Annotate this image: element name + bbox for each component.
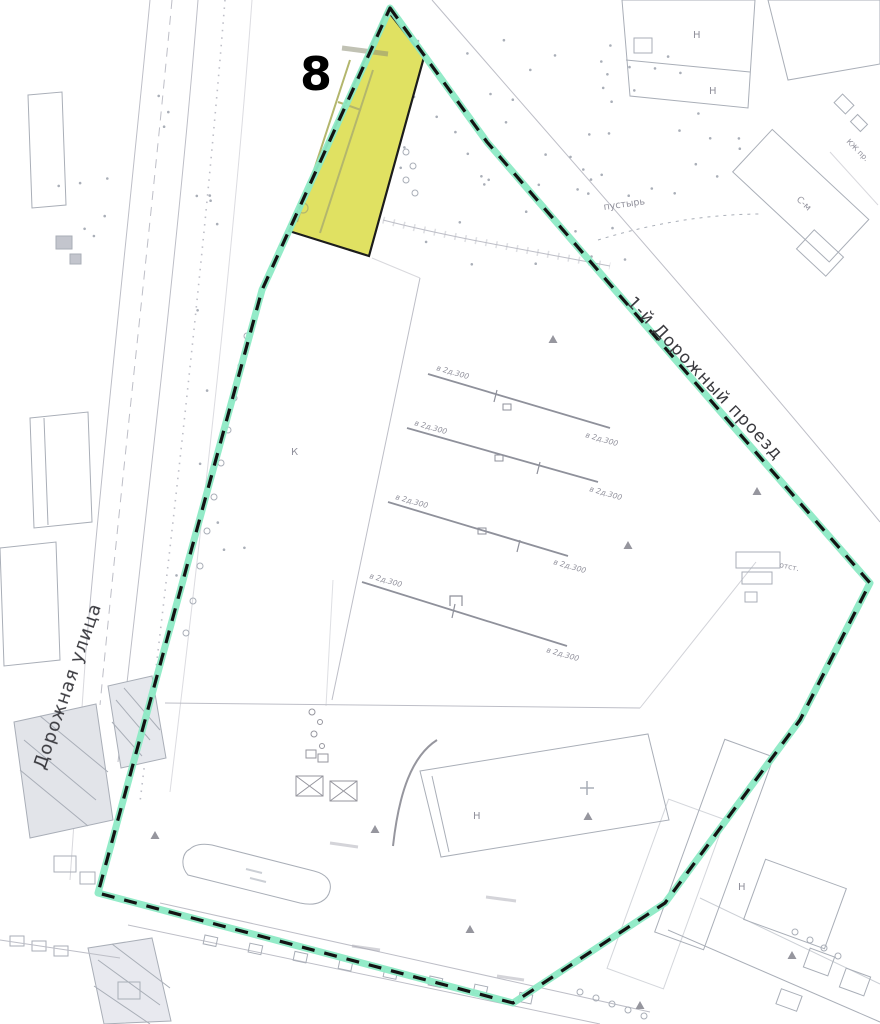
vegetation-dot bbox=[709, 137, 712, 140]
buildings-right-mid bbox=[736, 552, 780, 602]
utility-labels: в 2д.300 в 2д.300 в 2д.300 в 2д.300 в 2д… bbox=[368, 363, 623, 663]
triangle-symbol bbox=[549, 335, 558, 343]
vegetation-dot bbox=[489, 93, 492, 96]
vegetation-dot bbox=[454, 131, 457, 134]
vegetation-dot bbox=[480, 175, 483, 178]
vegetation-dot bbox=[624, 258, 627, 261]
vegetation-dot bbox=[503, 39, 506, 42]
n-label: Н bbox=[738, 882, 746, 893]
buildings-bottom-left bbox=[10, 936, 171, 1024]
vegetation-dot bbox=[83, 228, 86, 231]
vegetation-dot bbox=[163, 125, 166, 128]
vegetation-dot bbox=[574, 230, 577, 233]
vegetation-dot bbox=[106, 177, 109, 180]
site-boundary bbox=[98, 8, 870, 1003]
topographic-plan-canvas: в 2д.300 в 2д.300 в 2д.300 в 2д.300 в 2д… bbox=[0, 0, 880, 1024]
vegetation-dot bbox=[467, 153, 470, 156]
k-label: К bbox=[291, 447, 298, 458]
survey-circle bbox=[197, 563, 203, 569]
vegetation-dot bbox=[554, 54, 557, 57]
point-circle bbox=[625, 1007, 631, 1013]
n-label: Н bbox=[693, 30, 701, 41]
vegetation-dot bbox=[175, 574, 178, 577]
vegetation-dot bbox=[600, 174, 603, 177]
building-bottom-centre bbox=[420, 734, 669, 857]
vegetation-dot bbox=[93, 235, 96, 238]
vegetation-dot bbox=[471, 263, 474, 266]
utility-label: в 2д.300 bbox=[588, 484, 623, 502]
buildings-bottom-right bbox=[607, 739, 880, 1022]
vegetation-dot bbox=[525, 210, 528, 213]
vegetation-dot bbox=[678, 129, 681, 132]
vegetation-dot bbox=[505, 121, 508, 124]
utility-label: в 2д.300 bbox=[394, 492, 429, 510]
vegetation-dot bbox=[79, 182, 82, 185]
vegetation-dot bbox=[216, 223, 219, 226]
vegetation-dot bbox=[487, 179, 490, 182]
triangle-symbol bbox=[151, 831, 160, 839]
vegetation-dot bbox=[206, 389, 209, 392]
n-label: Н bbox=[709, 86, 717, 97]
vegetation-dot bbox=[403, 146, 406, 149]
vegetation-dot bbox=[695, 163, 698, 166]
vegetation-dot bbox=[627, 194, 630, 197]
vegetation-dot bbox=[606, 73, 609, 76]
vegetation-dot bbox=[243, 547, 246, 550]
base-linework bbox=[0, 0, 880, 1024]
pole-cluster bbox=[296, 709, 437, 846]
vegetation-dot bbox=[57, 185, 60, 188]
buildings-left bbox=[0, 92, 166, 884]
vegetation-dot bbox=[538, 184, 541, 187]
vegetation-dot bbox=[600, 60, 603, 63]
vegetation-dot bbox=[610, 100, 613, 103]
vegetation-dot bbox=[157, 95, 160, 98]
point-circle bbox=[792, 929, 798, 935]
triangle-symbol bbox=[636, 1001, 645, 1009]
vegetation-dot bbox=[435, 116, 438, 119]
vegetation-dot bbox=[587, 192, 590, 195]
vegetation-dot bbox=[628, 66, 631, 69]
vegetation-dot bbox=[611, 227, 614, 230]
triangle-symbols bbox=[151, 335, 797, 1009]
vegetation-dot bbox=[673, 192, 676, 195]
vegetation-dot bbox=[199, 463, 202, 466]
vegetation-dot bbox=[738, 137, 741, 140]
vegetation-dot bbox=[209, 199, 212, 202]
survey-circle bbox=[204, 528, 210, 534]
point-circle bbox=[835, 953, 841, 959]
vegetation-dot bbox=[103, 215, 106, 218]
point-circle bbox=[641, 1013, 647, 1019]
vegetation-dot bbox=[602, 87, 605, 90]
triangle-symbol bbox=[788, 951, 797, 959]
vegetation-dot bbox=[588, 133, 591, 136]
vegetation-dot bbox=[609, 44, 612, 47]
site-plan-svg: в 2д.300 в 2д.300 в 2д.300 в 2д.300 в 2д… bbox=[0, 0, 880, 1024]
vegetation-dot bbox=[590, 178, 593, 181]
vegetation-dot bbox=[425, 241, 428, 244]
vegetation-dot bbox=[716, 175, 719, 178]
vegetation-dot bbox=[651, 187, 654, 190]
point-circle bbox=[577, 989, 583, 995]
teardrop-structure bbox=[183, 844, 330, 904]
vegetation-dot bbox=[534, 262, 537, 265]
kzh-label: КЖ пр. bbox=[845, 137, 871, 163]
vegetation-dot bbox=[544, 153, 547, 156]
vegetation-dot bbox=[209, 194, 212, 197]
survey-circle bbox=[211, 494, 217, 500]
vegetation-dot bbox=[679, 72, 682, 75]
point-circle bbox=[807, 937, 813, 943]
vegetation-dot bbox=[654, 67, 657, 70]
boundary-highlight bbox=[98, 8, 870, 1003]
plot-number: 8 bbox=[300, 47, 332, 101]
utility-label: в 2д.300 bbox=[545, 645, 580, 663]
vegetation-dot bbox=[569, 156, 572, 159]
vegetation-dot bbox=[196, 195, 199, 198]
utility-label: в 2д.300 bbox=[584, 430, 619, 448]
vegetation-dot bbox=[512, 98, 515, 101]
vegetation-dot bbox=[529, 69, 532, 72]
vegetation-dot bbox=[576, 188, 579, 191]
vegetation-dot bbox=[697, 112, 700, 115]
utility-label: в 2д.300 bbox=[413, 418, 448, 436]
utility-lines bbox=[362, 374, 610, 646]
vegetation-dot bbox=[399, 167, 402, 170]
vegetation-dot bbox=[459, 221, 462, 224]
vegetation-dot bbox=[217, 521, 220, 524]
vegetation-dot bbox=[633, 89, 636, 92]
triangle-symbol bbox=[371, 825, 380, 833]
triangle-symbol bbox=[753, 487, 762, 495]
triangle-symbol bbox=[584, 812, 593, 820]
triangle-symbol bbox=[624, 541, 633, 549]
vegetation-dot bbox=[582, 168, 585, 171]
triangle-symbol bbox=[466, 925, 475, 933]
road-right bbox=[432, 0, 880, 522]
utility-label: в 2д.300 bbox=[552, 557, 587, 575]
vegetation-dot bbox=[608, 132, 611, 135]
sm-label: С-м bbox=[794, 195, 813, 213]
otst-label: отст. bbox=[779, 560, 800, 573]
vegetation-dot bbox=[223, 548, 226, 551]
vegetation-dot bbox=[466, 52, 469, 55]
survey-circle bbox=[183, 630, 189, 636]
boundary-dash bbox=[98, 8, 870, 1003]
vegetation-dot bbox=[167, 111, 170, 114]
vegetation-dot bbox=[739, 147, 742, 150]
street-name-right: 1-й Дорожный проезд bbox=[623, 293, 787, 464]
vegetation-dot bbox=[667, 55, 670, 58]
vegetation-dot bbox=[196, 309, 199, 312]
n-label: Н bbox=[473, 811, 481, 822]
vegetation-dot bbox=[483, 183, 486, 186]
pustyr-label: пустырь bbox=[603, 196, 646, 213]
